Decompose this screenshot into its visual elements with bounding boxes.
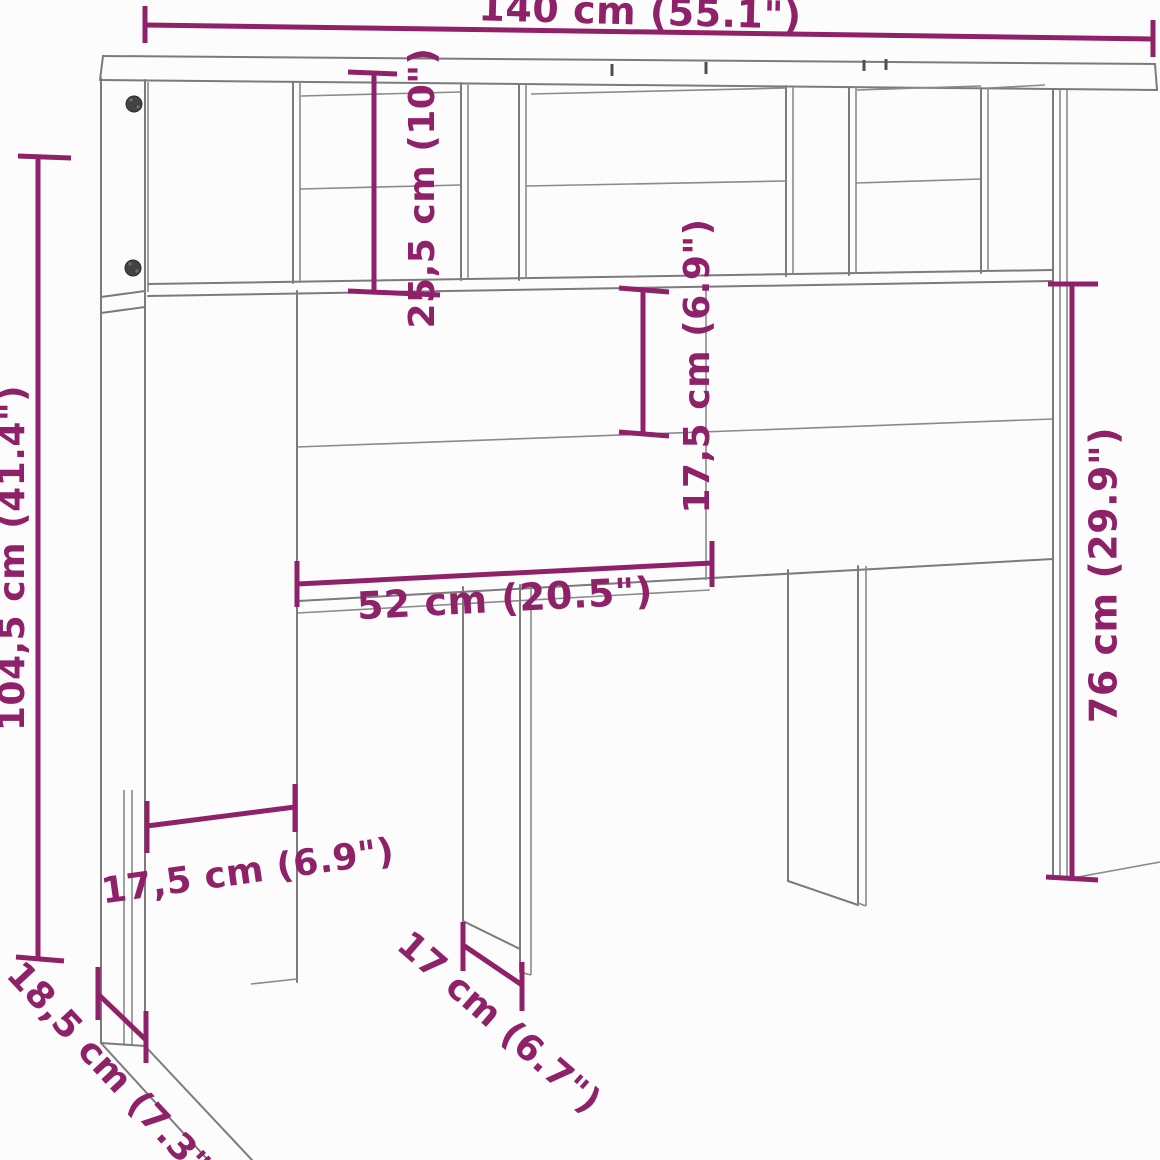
front-panel: [251, 288, 1053, 984]
dimension-leg-depth: 17 cm (6.7"): [389, 922, 609, 1122]
dimension-total-width: 140 cm (55.1"): [145, 0, 1153, 57]
dimension-lower-height: 76 cm (29.9"): [1046, 284, 1126, 880]
dimension-base-depth: 18,5 cm (7.3"): [0, 954, 230, 1160]
left-leg-width-label: 17,5 cm (6.9"): [99, 831, 397, 913]
dimension-mid-panel-height: 17,5 cm (6.9"): [619, 218, 718, 513]
right-center-leg: [788, 566, 866, 906]
mid-panel-height-label: 17,5 cm (6.9"): [677, 218, 718, 513]
dimension-panel-width: 52 cm (20.5"): [297, 541, 712, 628]
cubby-shelves: [148, 82, 1053, 296]
dimension-total-height: 104,5 cm (41.4"): [0, 156, 71, 961]
screw-icon: [126, 96, 142, 112]
left-side-panel: [101, 78, 252, 1160]
leg-depth-label: 17 cm (6.7"): [389, 924, 609, 1123]
center-leg: [463, 585, 531, 975]
top-slab: [100, 56, 1157, 90]
shelf-height-label: 25,5 cm (10"): [402, 48, 443, 329]
dimension-left-leg-width: 17,5 cm (6.9"): [99, 784, 397, 912]
dimension-diagram: 140 cm (55.1") 104,5 cm (41.4") 25,5 cm …: [0, 0, 1160, 1160]
total-height-label: 104,5 cm (41.4"): [0, 385, 33, 731]
base-depth-label: 18,5 cm (7.3"): [0, 954, 230, 1160]
screw-icon: [125, 260, 141, 276]
lower-height-label: 76 cm (29.9"): [1082, 427, 1126, 723]
